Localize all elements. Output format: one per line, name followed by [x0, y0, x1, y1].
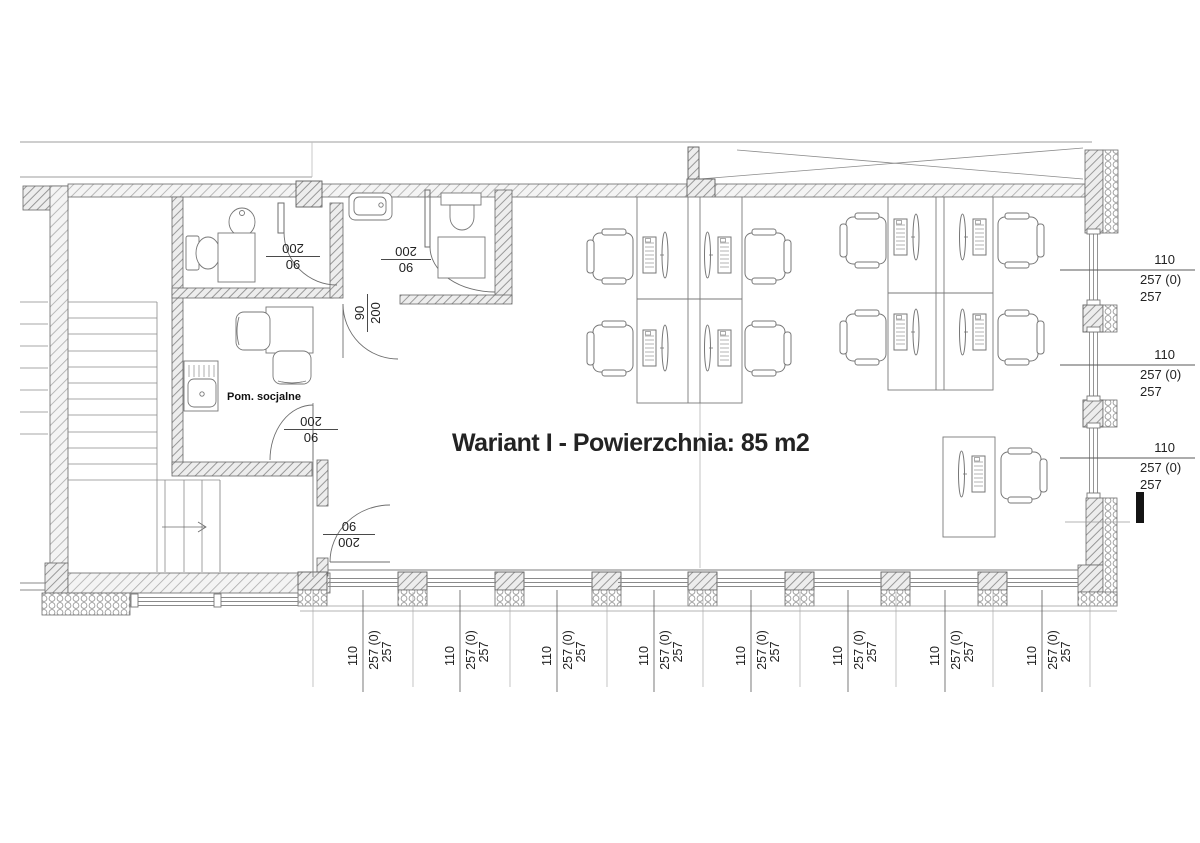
bath2-table	[438, 237, 485, 278]
dim-bottom-0-v2: 257 (0)	[367, 630, 381, 670]
door-width: 90	[399, 261, 413, 274]
room-label-social: Pom. socjalne	[227, 391, 301, 403]
dim-bottom-3-v1: 110	[637, 646, 651, 666]
dim-right-2-v1: 110	[1127, 440, 1175, 455]
dim-right-2-v2: 257 (0)	[1140, 460, 1181, 475]
toilet2-bowl	[450, 205, 474, 230]
desk-single	[943, 437, 995, 537]
door-width: 90	[353, 306, 366, 320]
door-label-corridor-exit: 200 90	[323, 520, 375, 549]
door-height: 200	[369, 302, 382, 324]
dim-bottom-5-v3: 257	[865, 642, 879, 663]
dim-bottom-4-v2: 257 (0)	[755, 630, 769, 670]
dim-bottom-0-v1: 110	[346, 646, 360, 666]
dim-rule	[284, 429, 338, 430]
dim-bottom-1-v2: 257 (0)	[464, 630, 478, 670]
toilet-side-bowl	[196, 237, 220, 269]
dim-bottom-6-v2: 257 (0)	[949, 630, 963, 670]
boundary-lines	[20, 142, 1092, 177]
door-height: 200	[395, 245, 417, 258]
dim-right-0-v2: 257 (0)	[1140, 272, 1181, 287]
door-height: 200	[300, 415, 322, 428]
dim-bottom-7-v3: 257	[1059, 642, 1073, 663]
dim-rule	[266, 256, 320, 257]
social-chair-2	[273, 351, 311, 384]
dim-bottom-1-v3: 257	[477, 642, 491, 663]
dim-bottom-4-v3: 257	[768, 642, 782, 663]
door-label-toilet2-corridor: 90 200	[348, 294, 386, 332]
floorplan-drawing	[0, 0, 1200, 843]
washbasin-tap	[379, 203, 383, 207]
floorplan-page: Wariant I - Powierzchnia: 85 m2 Pom. soc…	[0, 0, 1200, 843]
scale-marker	[1136, 492, 1144, 523]
dim-right-0-v1: 110	[1127, 252, 1175, 267]
shower-tray	[218, 233, 255, 282]
dim-right-1-v3: 257	[1140, 384, 1162, 399]
kitchen-tap	[200, 392, 204, 396]
door-label-social: 90 200	[284, 415, 338, 444]
roof-x-brace	[700, 148, 1083, 179]
toilet1-flush	[240, 211, 245, 216]
dim-right-2-v3: 257	[1140, 477, 1162, 492]
door-height: 200	[282, 242, 304, 255]
dim-bottom-2-v3: 257	[574, 642, 588, 663]
dim-right-1-v1: 110	[1127, 347, 1175, 362]
toilet2-tank	[441, 193, 481, 205]
dim-bottom-3-v2: 257 (0)	[658, 630, 672, 670]
social-chair-1	[236, 312, 270, 350]
page-title: Wariant I - Powierzchnia: 85 m2	[452, 429, 809, 458]
door-width: 90	[342, 520, 356, 533]
door-height: 200	[338, 536, 360, 549]
dim-bottom-2-v2: 257 (0)	[561, 630, 575, 670]
dim-right-1-v2: 257 (0)	[1140, 367, 1181, 382]
door-width: 90	[286, 258, 300, 271]
dim-bottom-5-v2: 257 (0)	[852, 630, 866, 670]
desk-clusters	[637, 197, 995, 537]
dim-bottom-0-v3: 257	[380, 642, 394, 663]
door-swings	[270, 232, 495, 562]
dim-bottom-3-v3: 257	[671, 642, 685, 663]
dim-bottom-6-v1: 110	[928, 646, 942, 666]
dim-bottom-1-v1: 110	[443, 646, 457, 666]
dim-bottom-4-v1: 110	[734, 646, 748, 666]
desk-cluster-left	[637, 197, 742, 403]
dim-bottom-6-v3: 257	[962, 642, 976, 663]
dim-bottom-7-v1: 110	[1025, 646, 1039, 666]
dim-bottom-5-v1: 110	[831, 646, 845, 666]
dim-rule	[381, 259, 431, 260]
door-width: 90	[304, 431, 318, 444]
dim-right-0-v3: 257	[1140, 289, 1162, 304]
door-label-toilet2: 90 200	[381, 245, 431, 274]
social-table	[266, 307, 313, 353]
dim-bottom-2-v1: 110	[540, 646, 554, 666]
dim-bottom-7-v2: 257 (0)	[1046, 630, 1060, 670]
door-label-toilet1: 90 200	[266, 242, 320, 271]
dim-rule	[323, 534, 375, 535]
